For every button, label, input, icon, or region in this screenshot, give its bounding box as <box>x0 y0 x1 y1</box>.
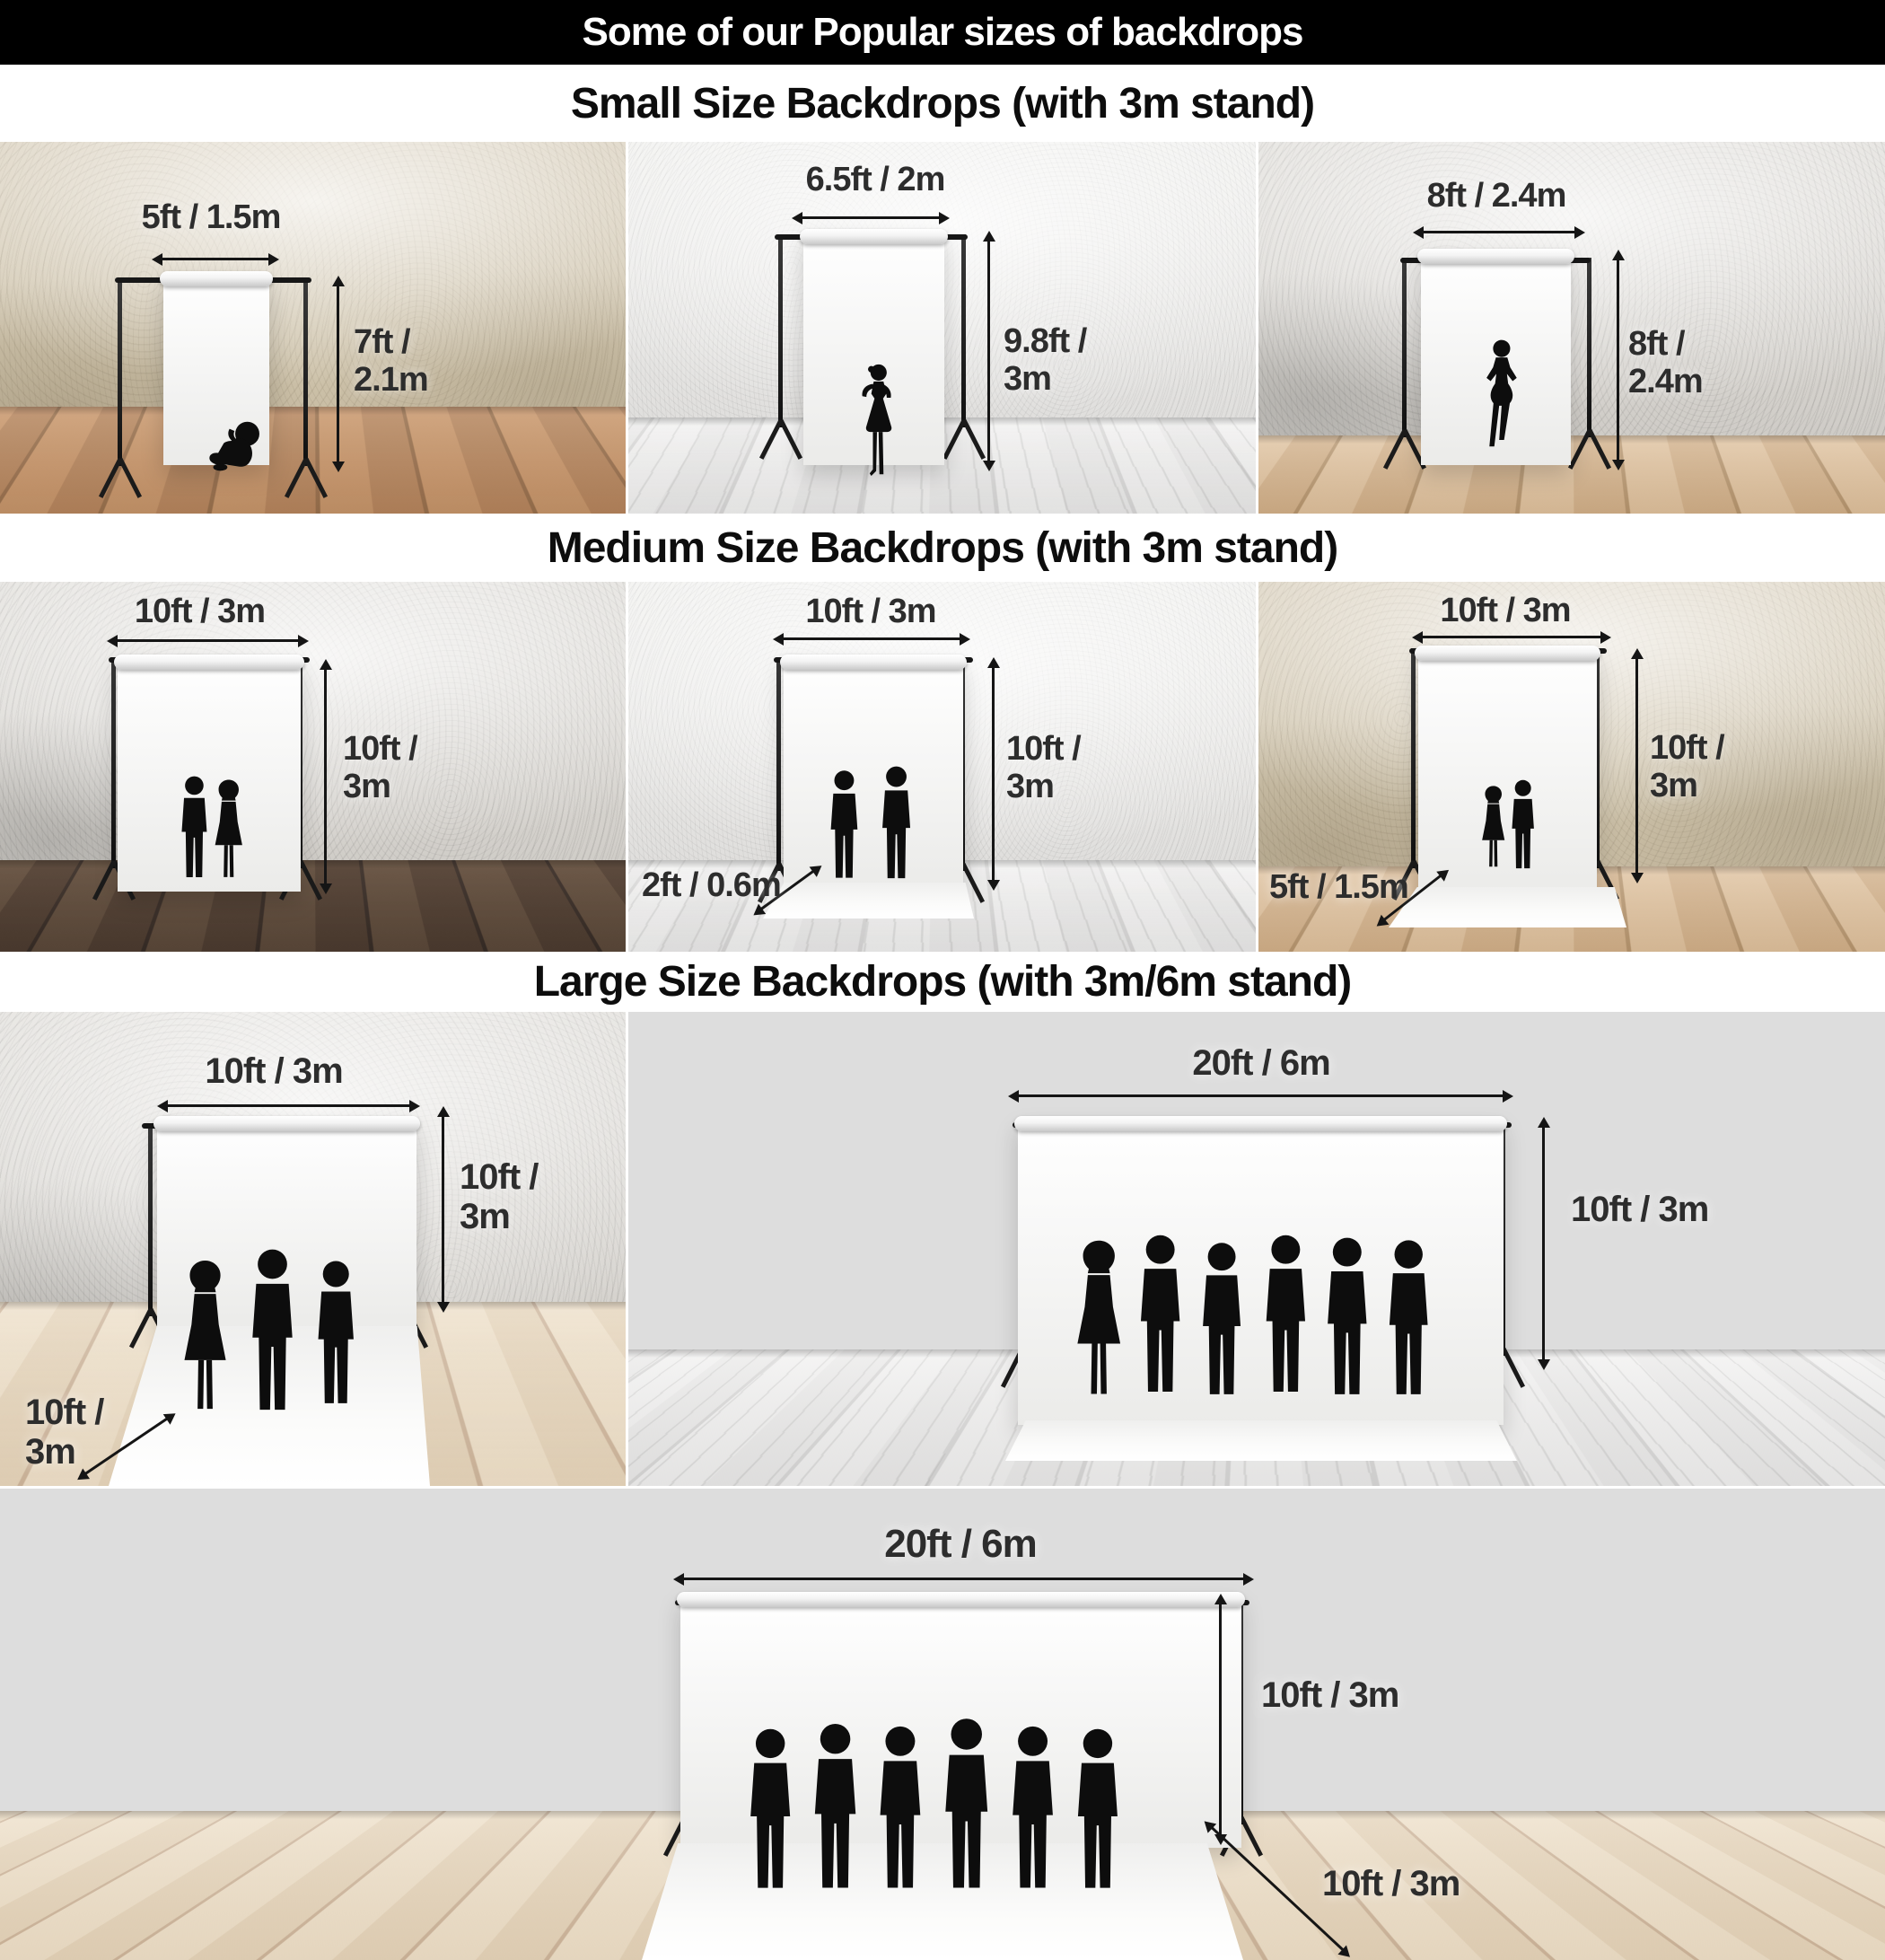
posing-woman-silhouette-icon <box>1474 336 1528 490</box>
large-backdrops-row: 10ft / 3m 10ft / 3m 10ft / 3m 20ft / 6m … <box>0 1012 1885 1486</box>
baby-silhouette-icon <box>205 410 273 486</box>
left-stand <box>118 277 122 466</box>
width-dimension-label: 8ft / 2.4m <box>1393 178 1600 215</box>
height-arrow <box>992 667 995 881</box>
left-stand <box>1411 648 1416 868</box>
left-stand <box>148 1123 153 1316</box>
width-arrow <box>1423 231 1575 233</box>
wood-planks <box>0 860 626 952</box>
height-dimension-label: 10ft / 3m <box>1571 1190 1708 1229</box>
width-dimension-label: 10ft / 3m <box>763 593 978 631</box>
panel-10ft-couple: 10ft / 3m 10ft / 3m <box>0 582 626 952</box>
panel-20ft-sweep-men: 20ft / 6m 10ft / 3m 10ft / 3m <box>0 1489 1885 1960</box>
wood-planks <box>0 407 626 514</box>
business-trio-silhouette-icon <box>176 1235 369 1425</box>
height-arrow <box>337 286 339 462</box>
section-title-small-text: Small Size Backdrops (with 3m stand) <box>571 79 1314 128</box>
height-dimension-label: 10ft / 3m <box>1650 730 1724 805</box>
floor-sweep <box>1005 1420 1517 1461</box>
height-dimension-label: 9.8ft / 3m <box>1004 323 1086 399</box>
right-stand <box>961 234 966 427</box>
height-arrow <box>1635 658 1638 874</box>
section-title-large: Large Size Backdrops (with 3m/6m stand) <box>0 952 1885 1012</box>
width-arrow <box>683 1578 1244 1580</box>
right-stand <box>1587 258 1591 437</box>
paper-roll <box>780 655 967 670</box>
paper-roll <box>153 1116 420 1131</box>
floor-dimension-label: 5ft / 1.5m <box>1269 869 1408 907</box>
panel-20ft-group: 20ft / 6m 10ft / 3m <box>628 1012 1885 1486</box>
width-dimension-label: 6.5ft / 2m <box>767 162 983 199</box>
studio-floor <box>0 860 626 952</box>
section-title-small: Small Size Backdrops (with 3m stand) <box>0 65 1885 142</box>
girl-silhouette-icon <box>851 360 903 488</box>
paper-roll <box>800 229 948 244</box>
left-stand <box>776 657 781 871</box>
paper-roll <box>1415 646 1600 661</box>
height-dimension-label: 10ft / 3m <box>1261 1675 1398 1715</box>
paper-roll <box>114 655 304 670</box>
width-dimension-label: 5ft / 1.5m <box>94 199 328 237</box>
left-stand <box>1402 258 1407 437</box>
right-stand <box>303 277 308 466</box>
title-bar: Some of our Popular sizes of backdrops <box>0 0 1885 65</box>
paper-roll <box>160 271 273 286</box>
couple-silhouette-icon <box>174 747 251 905</box>
width-arrow <box>167 1104 410 1107</box>
width-arrow <box>1018 1094 1504 1097</box>
width-dimension-label: 10ft / 3m <box>139 1051 408 1091</box>
left-stand <box>111 657 116 868</box>
panel-10ft-two-men: 10ft / 3m 10ft / 3m 2ft / 0.6m <box>628 582 1256 952</box>
width-arrow <box>117 639 299 642</box>
width-arrow <box>802 216 940 219</box>
studio-floor <box>1258 435 1885 514</box>
width-dimension-label: 20ft / 6m <box>808 1523 1113 1566</box>
couple-silhouette-icon <box>1477 734 1544 914</box>
width-dimension-label: 10ft / 3m <box>85 593 314 631</box>
height-arrow <box>1219 1604 1222 1835</box>
height-arrow <box>442 1116 444 1303</box>
six-men-silhouette-icon <box>738 1702 1133 1904</box>
paper-roll <box>1014 1116 1507 1131</box>
height-dimension-label: 10ft / 3m <box>343 731 417 806</box>
floor-dimension-label: 2ft / 0.6m <box>642 867 781 905</box>
studio-floor <box>0 407 626 514</box>
panel-5ft-backdrop: 5ft / 1.5m 7ft / 2.1m <box>0 142 626 514</box>
height-dimension-label: 8ft / 2.4m <box>1628 326 1703 401</box>
height-arrow <box>1617 259 1619 461</box>
two-men-silhouette-icon <box>823 737 918 908</box>
small-backdrops-row: 5ft / 1.5m 7ft / 2.1m 6.5ft / 2m 9.8ft /… <box>0 142 1885 514</box>
height-dimension-label: 7ft / 2.1m <box>354 324 428 400</box>
width-dimension-label: 20ft / 6m <box>1127 1043 1396 1083</box>
section-title-medium-text: Medium Size Backdrops (with 3m stand) <box>548 523 1337 573</box>
floor-dimension-label: 10ft / 3m <box>1322 1864 1460 1903</box>
width-arrow <box>162 258 269 260</box>
height-arrow <box>987 241 990 461</box>
width-arrow <box>1422 636 1601 638</box>
floor-dimension-label: 10ft / 3m <box>25 1393 103 1472</box>
section-title-medium: Medium Size Backdrops (with 3m stand) <box>0 514 1885 582</box>
height-arrow <box>1542 1127 1545 1360</box>
paper-roll <box>1417 249 1574 264</box>
panel-10ft-couple-sweep: 10ft / 3m 10ft / 3m 5ft / 1.5m <box>1258 582 1885 952</box>
wood-planks <box>1258 435 1885 514</box>
height-dimension-label: 10ft / 3m <box>460 1157 538 1236</box>
page-title: Some of our Popular sizes of backdrops <box>582 10 1302 55</box>
panel-6-5ft-backdrop: 6.5ft / 2m 9.8ft / 3m <box>628 142 1256 514</box>
width-dimension-label: 10ft / 3m <box>1398 593 1613 630</box>
panel-8ft-backdrop: 8ft / 2.4m 8ft / 2.4m <box>1258 142 1885 514</box>
medium-backdrops-row: 10ft / 3m 10ft / 3m 10ft / 3m 10ft / 3m … <box>0 582 1885 952</box>
panel-10ft-sweep-trio: 10ft / 3m 10ft / 3m 10ft / 3m <box>0 1012 626 1486</box>
height-arrow <box>324 669 327 884</box>
six-people-silhouette-icon <box>1068 1220 1447 1407</box>
backdrop-size-infographic: { "header": { "title": "Some of our Popu… <box>0 0 1885 1960</box>
left-stand <box>778 234 783 427</box>
height-dimension-label: 10ft / 3m <box>1006 731 1081 806</box>
width-arrow <box>783 637 960 640</box>
section-title-large-text: Large Size Backdrops (with 3m/6m stand) <box>534 957 1352 1006</box>
paper-roll <box>677 1592 1245 1607</box>
